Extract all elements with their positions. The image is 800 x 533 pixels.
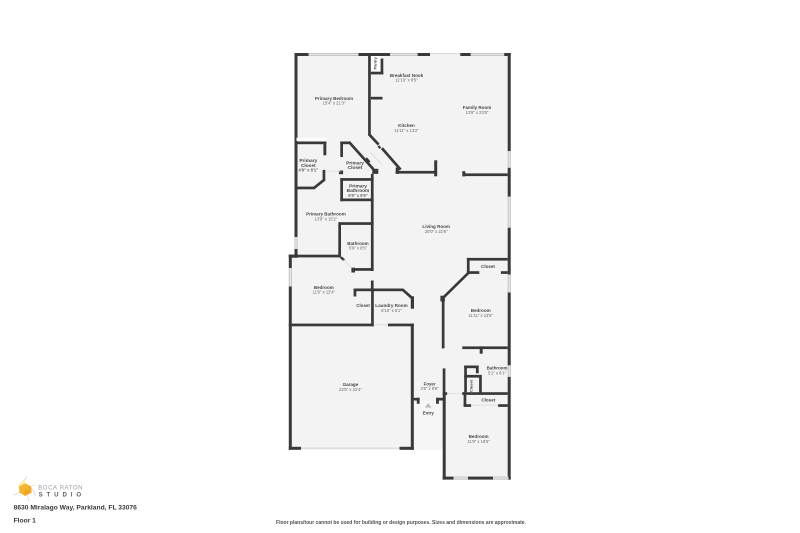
- svg-text:Pantry: Pantry: [373, 56, 378, 69]
- svg-text:13'9" x 15'2": 13'9" x 15'2": [315, 217, 338, 222]
- svg-text:6'10" x 6'1": 6'10" x 6'1": [381, 308, 402, 313]
- svg-text:11'9" x 16'5": 11'9" x 16'5": [467, 439, 490, 444]
- svg-text:20'0" x 22'6": 20'0" x 22'6": [425, 229, 448, 234]
- svg-text:Closet: Closet: [348, 165, 363, 171]
- svg-text:Floor plans/tour cannot be use: Floor plans/tour cannot be used for buil…: [276, 520, 527, 526]
- svg-text:11'10" x 8'5": 11'10" x 8'5": [395, 78, 418, 83]
- svg-text:Floor 1: Floor 1: [14, 518, 37, 525]
- svg-text:Closet: Closet: [356, 303, 370, 308]
- svg-text:11'6" x 12'4": 11'6" x 12'4": [313, 290, 336, 295]
- svg-text:15'4" x 21'3": 15'4" x 21'3": [323, 101, 346, 106]
- svg-text:Closet: Closet: [481, 398, 495, 403]
- svg-text:11'11" x 13'2": 11'11" x 13'2": [394, 128, 419, 133]
- svg-text:22'5" x 22'4": 22'5" x 22'4": [339, 387, 362, 392]
- svg-text:5'1" x 8'1": 5'1" x 8'1": [488, 370, 507, 375]
- svg-text:4'9" x 8'1": 4'9" x 8'1": [299, 168, 319, 173]
- svg-text:13'8" x 23'6": 13'8" x 23'6": [466, 110, 489, 115]
- svg-text:3'8" x 9'8": 3'8" x 9'8": [421, 386, 440, 391]
- svg-text:Closet: Closet: [481, 264, 495, 269]
- svg-text:BOCA RATON: BOCA RATON: [38, 484, 83, 491]
- svg-text:11'11" x 13'5": 11'11" x 13'5": [468, 313, 493, 318]
- svg-text:8630 Miralago Way, Parkland, F: 8630 Miralago Way, Parkland, FL 33076: [14, 504, 138, 511]
- svg-text:Entry: Entry: [423, 410, 435, 415]
- svg-text:Closet: Closet: [468, 379, 473, 392]
- svg-text:STUDIO: STUDIO: [39, 492, 85, 499]
- svg-text:5'9" x 8'6": 5'9" x 8'6": [348, 193, 368, 198]
- svg-text:5'9" x 8'5": 5'9" x 8'5": [349, 246, 368, 251]
